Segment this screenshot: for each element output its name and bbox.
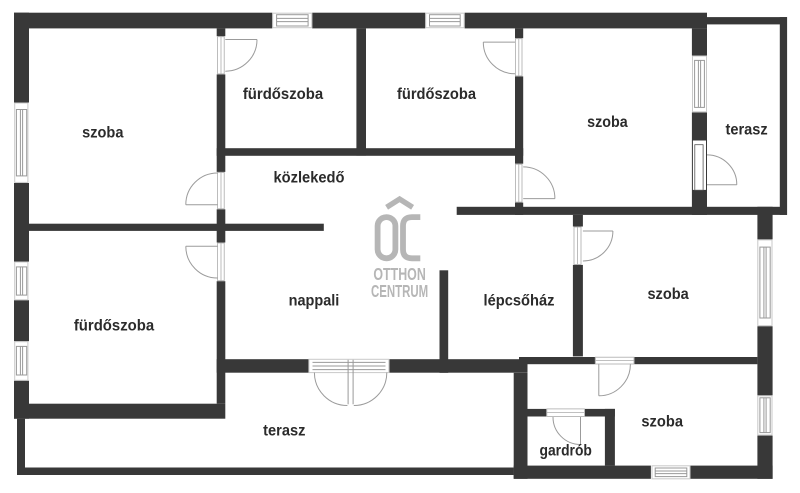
svg-text:szoba: szoba bbox=[587, 114, 628, 131]
svg-text:közlekedő: közlekedő bbox=[274, 169, 345, 186]
svg-text:CENTRUM: CENTRUM bbox=[371, 281, 428, 301]
svg-text:terasz: terasz bbox=[263, 423, 305, 440]
svg-text:szoba: szoba bbox=[647, 286, 688, 303]
svg-text:lépcsőház: lépcsőház bbox=[484, 293, 555, 310]
svg-text:nappali: nappali bbox=[289, 293, 340, 310]
svg-text:fürdőszoba: fürdőszoba bbox=[397, 86, 476, 103]
svg-text:gardrób: gardrób bbox=[540, 442, 593, 459]
svg-text:szoba: szoba bbox=[641, 413, 683, 430]
svg-text:fürdőszoba: fürdőszoba bbox=[74, 318, 154, 335]
svg-text:szoba: szoba bbox=[82, 125, 123, 142]
svg-text:fürdőszoba: fürdőszoba bbox=[243, 86, 323, 103]
svg-text:terasz: terasz bbox=[726, 121, 768, 138]
